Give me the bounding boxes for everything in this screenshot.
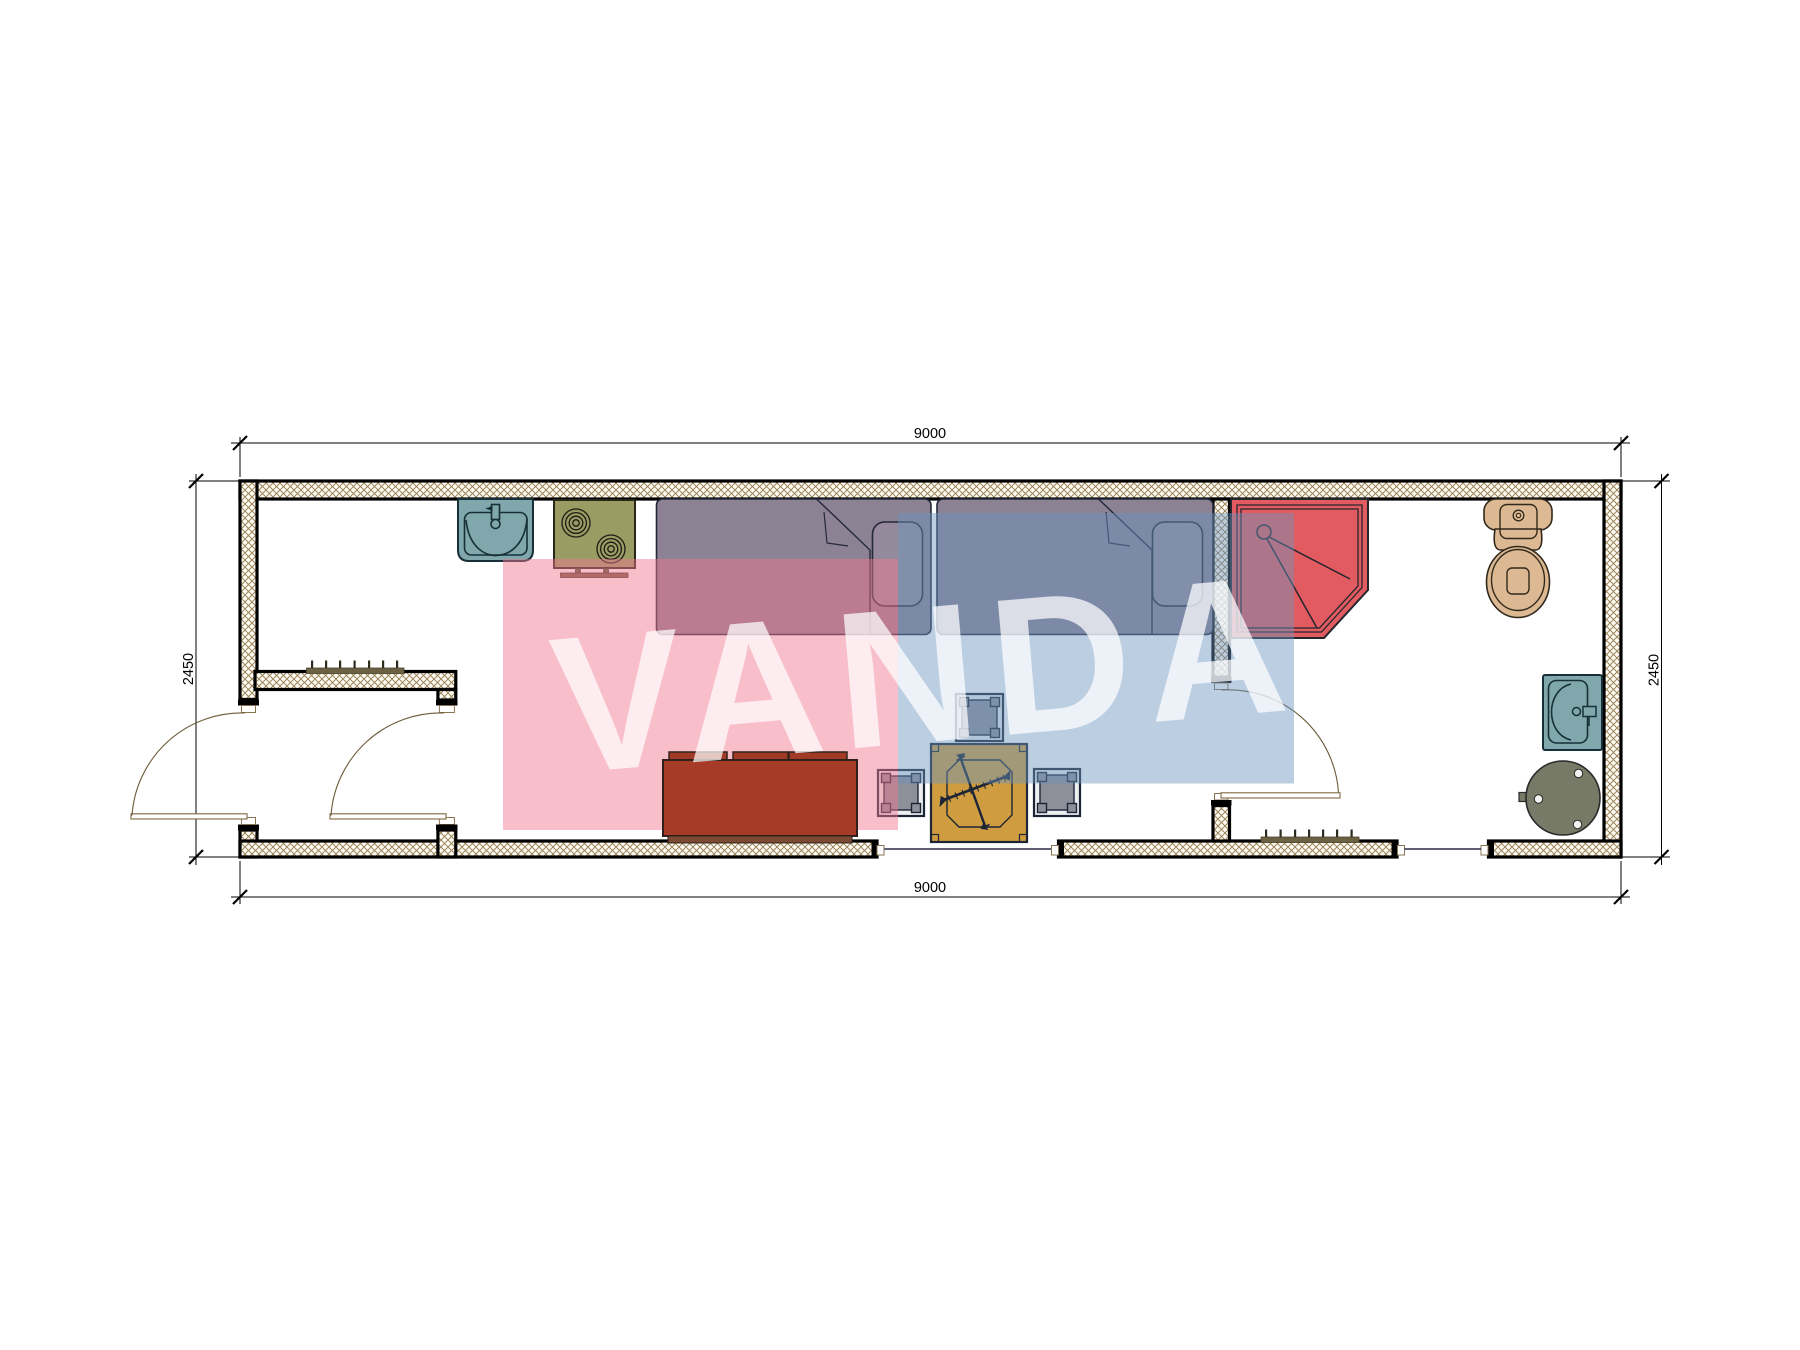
svg-text:9000: 9000 [914,880,946,896]
svg-text:2450: 2450 [181,653,197,685]
svg-text:9000: 9000 [914,426,946,442]
svg-text:2450: 2450 [1647,654,1663,686]
